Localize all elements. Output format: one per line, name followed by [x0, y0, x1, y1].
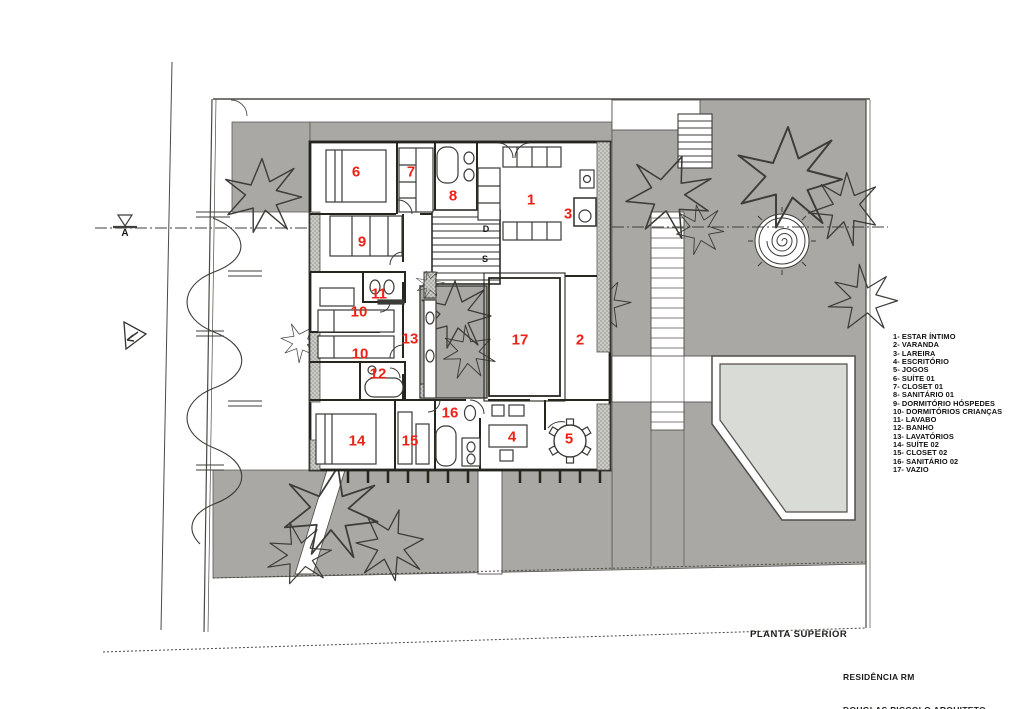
room-marker-8: 8 — [449, 189, 457, 204]
room-marker-2: 2 — [576, 333, 584, 348]
room-marker-11: 11 — [371, 287, 387, 302]
site-plan-drawing — [0, 0, 1024, 709]
room-marker-9: 9 — [358, 235, 366, 250]
room-marker-1: 1 — [527, 193, 535, 208]
title-architect: DOUGLAS PICCOLO ARQUITETO — [843, 705, 986, 709]
title-project: RESIDÊNCIA RM — [843, 672, 986, 683]
plan-label: PLANTA SUPERIOR — [750, 629, 847, 640]
room-marker-14: 14 — [349, 434, 366, 449]
room-marker-4: 4 — [508, 430, 516, 445]
title-block: RESIDÊNCIA RM DOUGLAS PICCOLO ARQUITETO … — [843, 649, 986, 709]
legend: 1- ESTAR ÍNTIMO2- VARANDA3- LAREIRA4- ES… — [893, 333, 1002, 474]
floor-plan-sheet: PLANTA SUPERIOR RESIDÊNCIA RM DOUGLAS PI… — [0, 0, 1024, 709]
room-marker-7: 7 — [407, 165, 415, 180]
room-marker-16: 16 — [442, 406, 459, 421]
room-marker-5: 5 — [565, 432, 573, 447]
room-marker-6: 6 — [352, 165, 360, 180]
legend-item: 17- VAZIO — [893, 466, 1002, 474]
room-marker-3: 3 — [564, 207, 572, 222]
room-marker-10: 10 — [352, 347, 369, 362]
room-marker-12: 12 — [370, 367, 387, 382]
section-marker-label: A — [121, 228, 128, 239]
stair-down-label: D — [483, 224, 490, 234]
exterior-stair — [678, 114, 712, 168]
room-marker-17: 17 — [512, 333, 529, 348]
stair-up-label: S — [482, 254, 488, 264]
room-marker-10: 10 — [351, 305, 368, 320]
section-marker-triangle — [118, 215, 132, 226]
room-marker-15: 15 — [402, 434, 419, 449]
north-arrow-icon — [124, 322, 146, 349]
room-marker-13: 13 — [402, 332, 419, 347]
